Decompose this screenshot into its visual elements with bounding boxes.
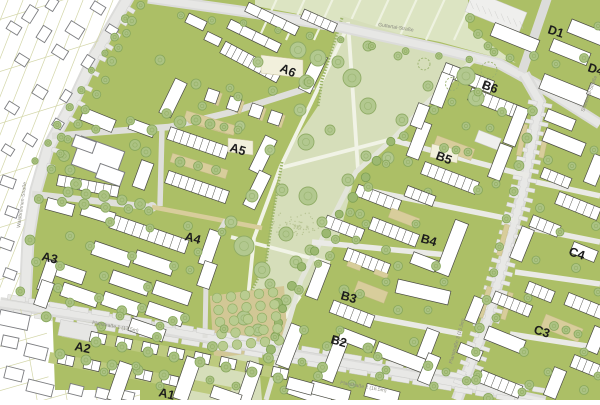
svg-text:A1: A1 bbox=[157, 385, 176, 400]
